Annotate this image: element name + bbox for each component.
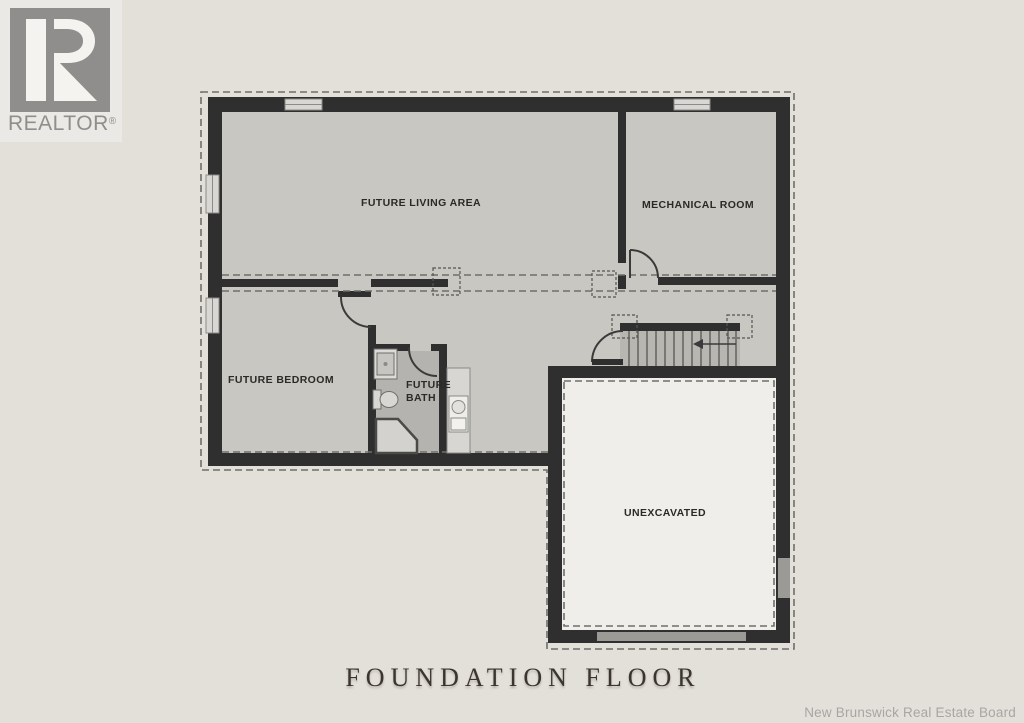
laundry-tub-base xyxy=(451,418,466,430)
opening-bottom-unexcavated xyxy=(597,632,746,641)
room-label-mechanical: MECHANICAL ROOM xyxy=(642,199,754,211)
wall-middle-jamb xyxy=(338,291,371,297)
unexcavated-floor xyxy=(562,378,776,630)
wall-left xyxy=(208,112,222,466)
room-label-living: FUTURE LIVING AREA xyxy=(361,197,481,209)
floorplan-drawing xyxy=(0,0,1024,723)
room-label-bath-line2: BATH xyxy=(406,392,451,405)
wall-unexcavated-left xyxy=(548,366,562,643)
wall-mechanical-divider xyxy=(618,112,626,263)
wall-bottom-main xyxy=(208,453,562,466)
room-label-bath-line1: FUTURE xyxy=(406,379,451,392)
toilet-bowl xyxy=(380,392,398,408)
room-label-bedroom: FUTURE BEDROOM xyxy=(228,374,334,386)
opening-right-unexcavated xyxy=(778,558,790,598)
page: REALTOR® xyxy=(0,0,1024,723)
vanity-faucet xyxy=(384,362,388,366)
room-label-unexcavated: UNEXCAVATED xyxy=(624,507,706,519)
plan-title: FOUNDATION FLOOR xyxy=(345,663,700,693)
watermark-credit: New Brunswick Real Estate Board xyxy=(804,705,1016,720)
wall-mechanical-bottom xyxy=(658,277,776,285)
stair-door-leaf xyxy=(592,359,623,365)
stair-rail xyxy=(620,323,740,331)
laundry-tub-basin xyxy=(452,401,465,414)
wall-middle-2 xyxy=(371,279,448,287)
room-label-bath: FUTURE BATH xyxy=(406,379,451,405)
wall-middle-1 xyxy=(222,279,338,287)
wall-mechanical-stub xyxy=(618,275,626,289)
wall-unexcavated-top xyxy=(548,366,776,378)
